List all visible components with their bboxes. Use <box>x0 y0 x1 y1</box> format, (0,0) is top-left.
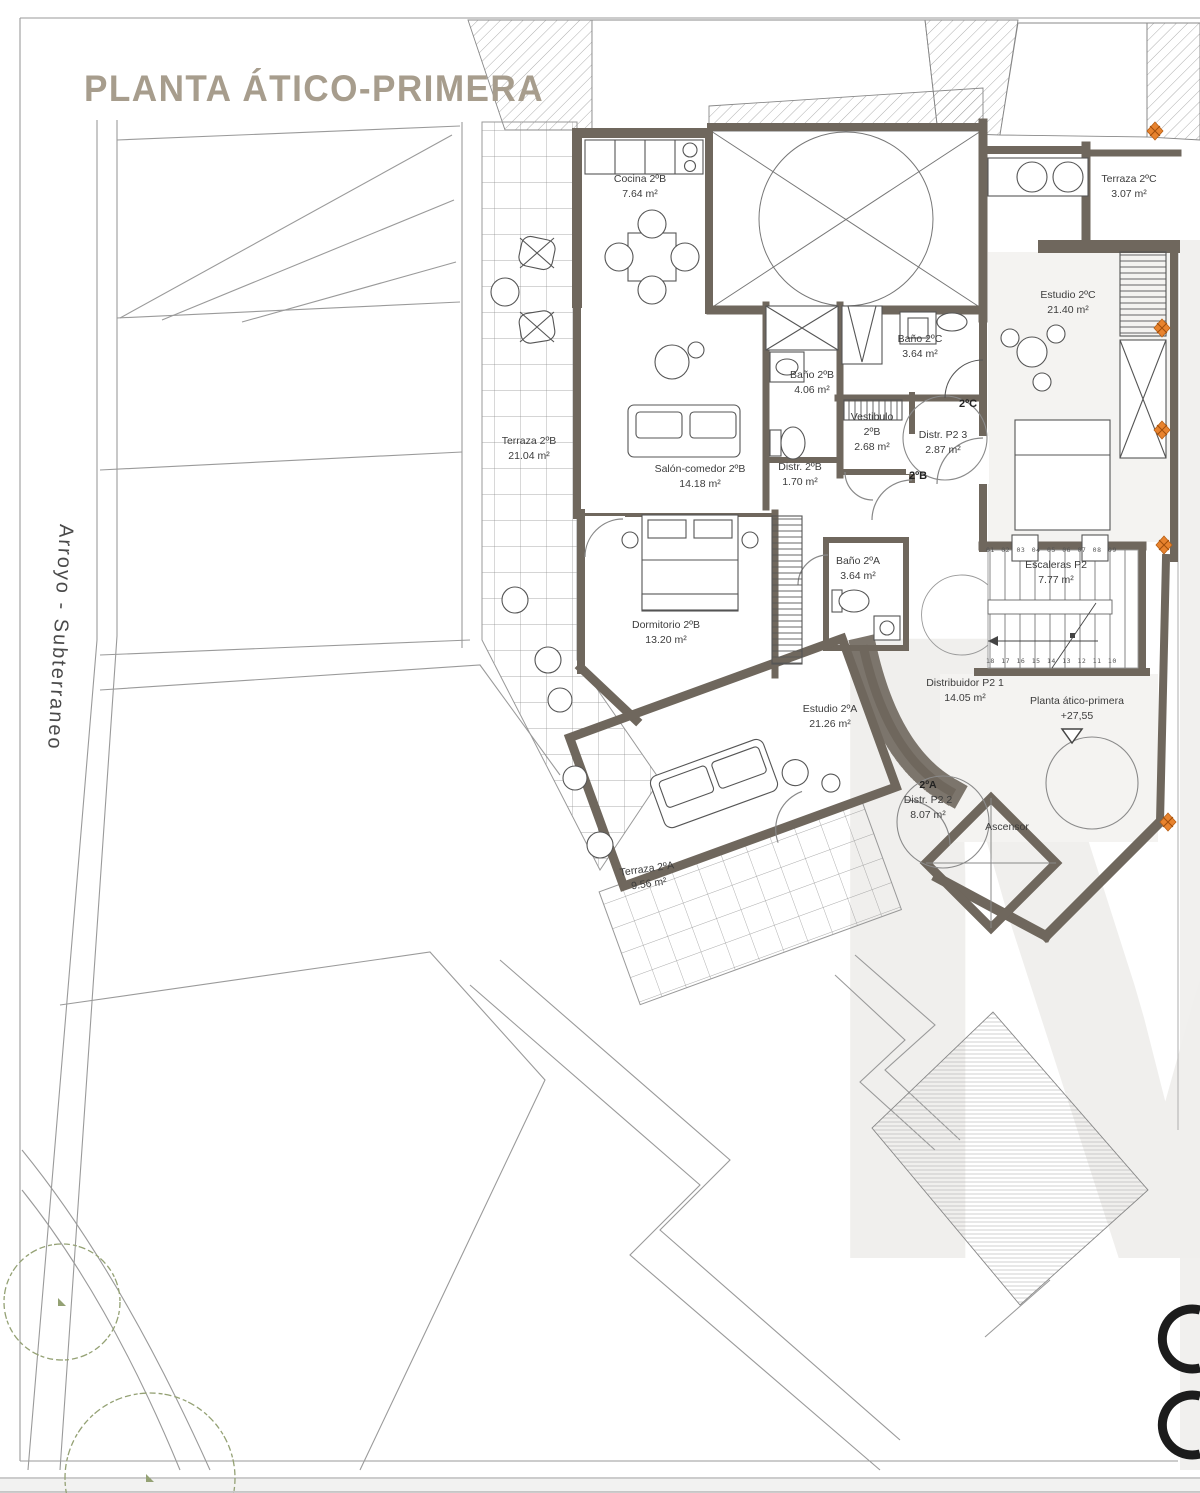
level-name: Planta ático-primera <box>1002 694 1152 709</box>
room-name: Baño 2ºA <box>818 554 898 569</box>
room-area: 8.07 m² <box>883 808 973 823</box>
room-name: Vestibulo 2ºB <box>841 410 903 440</box>
room-name: Dormitorio 2ºB <box>606 618 726 633</box>
room-area: 3.07 m² <box>1085 187 1173 202</box>
patio-lightwell <box>711 131 981 308</box>
room-label-terraza-2b: Terraza 2ºB 21.04 m² <box>479 434 579 464</box>
room-area: 7.64 m² <box>585 187 695 202</box>
room-name: Distribuidor P2 1 <box>900 676 1030 691</box>
room-name: Distr. P2 3 <box>903 428 983 443</box>
room-area: 13.20 m² <box>606 633 726 648</box>
level-marker-label: Planta ático-primera +27,55 <box>1002 694 1152 724</box>
room-label-estudio-2a: Estudio 2ºA 21.26 m² <box>775 702 885 732</box>
room-name: Baño 2ºC <box>875 332 965 347</box>
room-area: 2.87 m² <box>903 443 983 458</box>
room-label-vestibulo-2b: Vestibulo 2ºB 2.68 m² <box>841 410 903 456</box>
room-area: 21.26 m² <box>775 717 885 732</box>
floor-plan-page: M <box>0 0 1200 1493</box>
room-name: Cocina 2ºB <box>585 172 695 187</box>
room-area: 4.06 m² <box>772 383 852 398</box>
room-label-bano-2a: Baño 2ºA 3.64 m² <box>818 554 898 584</box>
room-label-cocina-2b: Cocina 2ºB 7.64 m² <box>585 172 695 202</box>
room-name: Escaleras P2 <box>1001 558 1111 573</box>
room-label-ascensor: Ascensor <box>962 820 1052 835</box>
room-label-escaleras-p2: Escaleras P2 7.77 m² <box>1001 558 1111 588</box>
room-name: Estudio 2ºA <box>775 702 885 717</box>
trees <box>4 1244 235 1493</box>
room-name: Salón-comedor 2ºB <box>625 462 775 477</box>
stair-step-numbers-top: 01 02 03 04 05 06 07 08 09 <box>986 547 1117 554</box>
room-label-terraza-2c: Terraza 2ºC 3.07 m² <box>1085 172 1173 202</box>
room-area: 3.64 m² <box>818 569 898 584</box>
room-label-distr-p2-3: Distr. P2 3 2.87 m² <box>903 428 983 458</box>
room-label-dormitorio-2b: Dormitorio 2ºB 13.20 m² <box>606 618 726 648</box>
unit-tag-2b: 2ºB <box>898 470 938 483</box>
room-label-salon-comedor-2b: Salón-comedor 2ºB 14.18 m² <box>625 462 775 492</box>
room-name: Ascensor <box>962 820 1052 835</box>
room-name: Distr. P2 2 <box>883 793 973 808</box>
floor-plan-drawing: M <box>0 0 1200 1493</box>
unit-tag-2c: 2ºC <box>948 398 988 411</box>
room-area: 21.04 m² <box>479 449 579 464</box>
stair-step-numbers-bottom: 18 17 16 15 14 13 12 11 10 <box>986 658 1117 665</box>
unit-tag-2a: 2ºA <box>883 778 973 793</box>
room-label-distr-p2-2: 2ºA Distr. P2 2 8.07 m² <box>883 778 973 824</box>
room-label-bano-2b: Baño 2ºB 4.06 m² <box>772 368 852 398</box>
page-title: PLANTA ÁTICO-PRIMERA <box>84 70 544 107</box>
room-area: 7.77 m² <box>1001 573 1111 588</box>
room-name: Terraza 2ºB <box>479 434 579 449</box>
room-area: 21.40 m² <box>1013 303 1123 318</box>
room-area: 3.64 m² <box>875 347 965 362</box>
room-name: Terraza 2ºC <box>1085 172 1173 187</box>
level-value: +27,55 <box>1002 709 1152 724</box>
room-name: Baño 2ºB <box>772 368 852 383</box>
room-label-bano-2c: Baño 2ºC 3.64 m² <box>875 332 965 362</box>
room-label-estudio-2c: Estudio 2ºC 21.40 m² <box>1013 288 1123 318</box>
room-area: 2.68 m² <box>841 440 903 455</box>
room-area: 14.18 m² <box>625 477 775 492</box>
room-name: Estudio 2ºC <box>1013 288 1123 303</box>
